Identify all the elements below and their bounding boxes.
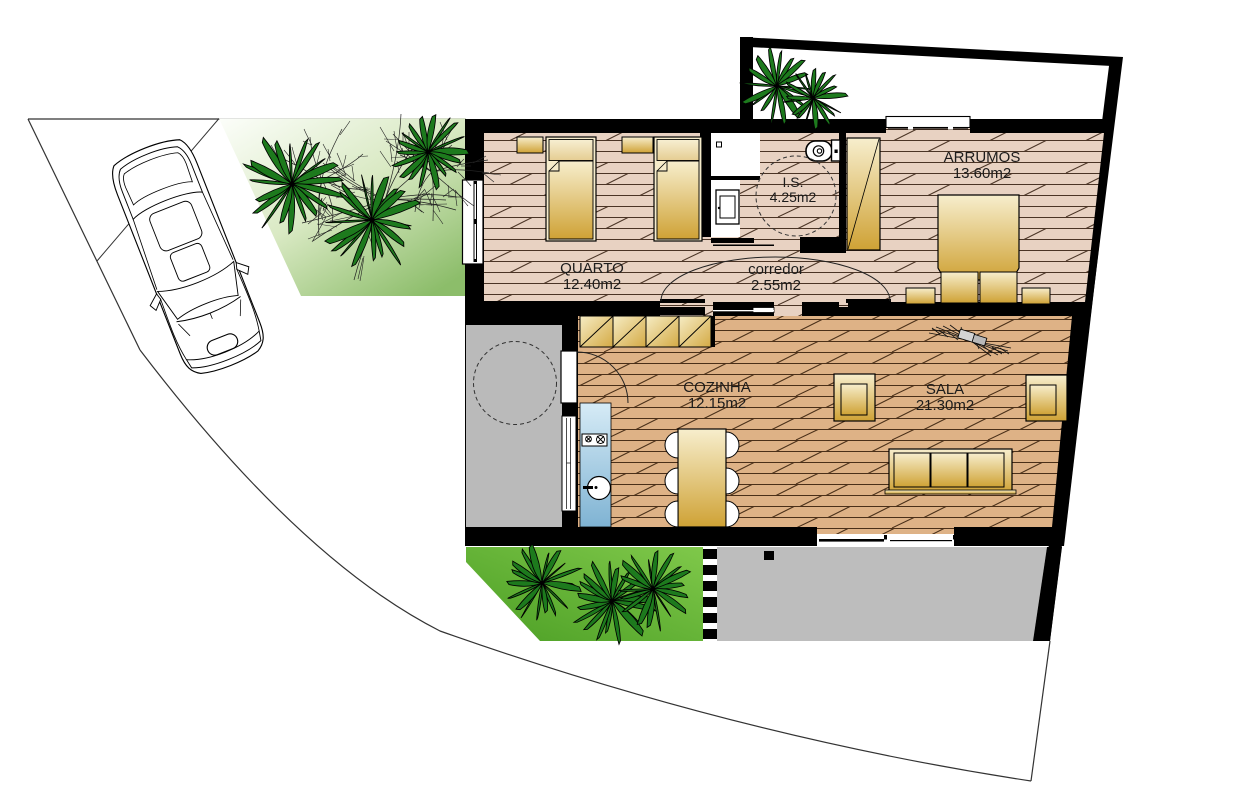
svg-text:13.60m2: 13.60m2 xyxy=(953,165,1011,182)
svg-text:4.25m2: 4.25m2 xyxy=(770,189,817,205)
svg-text:12.40m2: 12.40m2 xyxy=(563,276,621,293)
svg-text:I.S.: I.S. xyxy=(782,174,803,190)
svg-text:QUARTO: QUARTO xyxy=(560,260,624,277)
svg-text:SALA: SALA xyxy=(926,381,964,398)
svg-text:corredor: corredor xyxy=(748,261,804,278)
svg-text:ARRUMOS: ARRUMOS xyxy=(944,149,1021,166)
svg-text:12.15m2: 12.15m2 xyxy=(688,395,746,412)
svg-text:2.55m2: 2.55m2 xyxy=(751,277,801,294)
svg-text:COZINHA: COZINHA xyxy=(683,379,751,396)
svg-text:21.30m2: 21.30m2 xyxy=(916,397,974,414)
